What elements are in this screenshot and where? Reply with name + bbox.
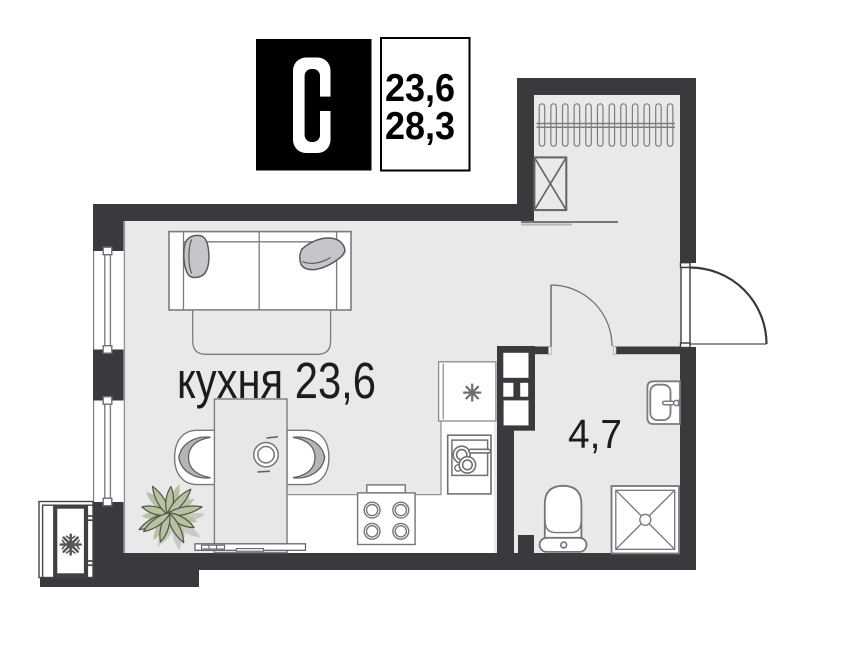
svg-text:4,7: 4,7 xyxy=(568,411,622,457)
svg-text:28,3: 28,3 xyxy=(385,105,455,148)
svg-text:23,6: 23,6 xyxy=(385,67,455,110)
svg-text:кухня 23,6: кухня 23,6 xyxy=(177,352,376,409)
